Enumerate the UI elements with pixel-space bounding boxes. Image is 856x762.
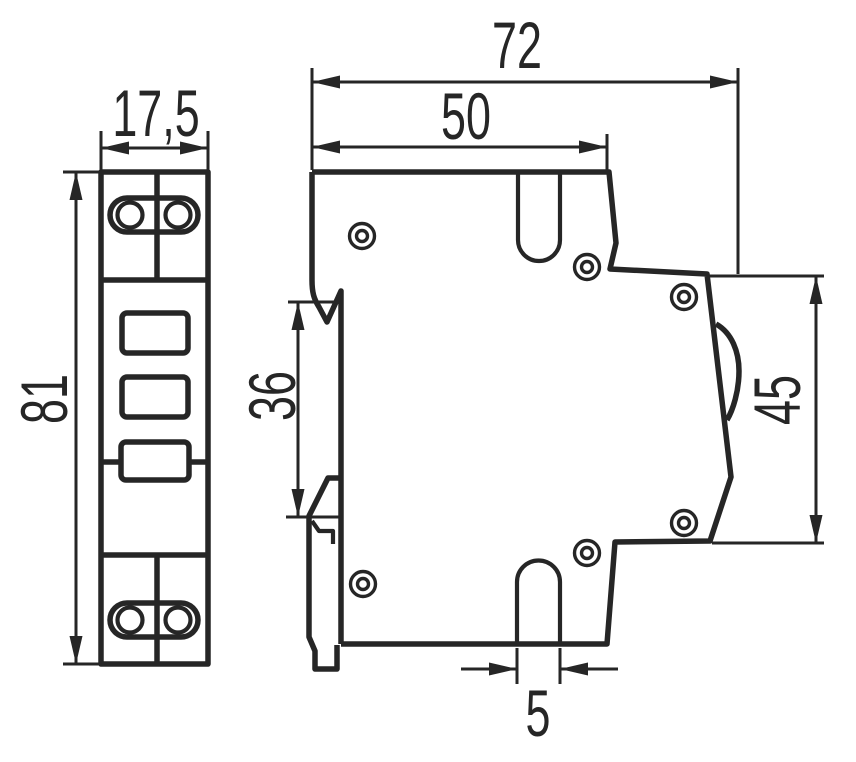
side-view bbox=[309, 172, 739, 669]
rivet-inner bbox=[582, 262, 593, 273]
front-window-1 bbox=[122, 313, 188, 353]
rivet-outer bbox=[672, 285, 697, 310]
dim-5-arrow-right bbox=[560, 663, 588, 676]
dim-5-arrow-left bbox=[489, 663, 517, 676]
dim-45-arrow-bottom bbox=[810, 515, 823, 543]
rivet-inner bbox=[358, 579, 369, 590]
dim-36-arrow-bottom bbox=[292, 489, 305, 517]
dim-72-arrow-right bbox=[710, 76, 738, 89]
rivet-inner bbox=[679, 518, 690, 529]
dim-45-arrow-top bbox=[810, 276, 823, 304]
terminal-screw-bottom-left bbox=[118, 608, 143, 633]
dim-label-50: 50 bbox=[441, 83, 491, 149]
dim-label-45: 45 bbox=[744, 375, 810, 425]
rivet-inner bbox=[357, 231, 368, 242]
rivet-bottom-left bbox=[351, 572, 376, 597]
dim-50-arrow-left bbox=[312, 141, 340, 154]
rivet-top-right bbox=[672, 285, 697, 310]
rivet-bottom-right bbox=[672, 511, 697, 536]
side-body-outline bbox=[312, 172, 731, 644]
rivet-outer bbox=[351, 572, 376, 597]
dim-36-arrow-top bbox=[292, 302, 305, 330]
rivet-inner bbox=[582, 548, 593, 559]
terminal-screw-top-right bbox=[166, 203, 191, 228]
rivet-outer bbox=[350, 224, 375, 249]
rivet-outer bbox=[672, 511, 697, 536]
rivet-top-left bbox=[350, 224, 375, 249]
mounting-slot-bottom bbox=[517, 561, 560, 647]
dim-label-17-5: 17,5 bbox=[112, 80, 199, 146]
dim-50-arrow-right bbox=[579, 141, 607, 154]
din-clip-detail bbox=[312, 521, 333, 544]
front-view bbox=[101, 172, 208, 664]
dim-72-arrow-left bbox=[312, 76, 340, 89]
din-clip bbox=[309, 478, 341, 669]
terminal-screw-top-left bbox=[118, 203, 143, 228]
rivet-outer bbox=[575, 541, 600, 566]
dim-label-72: 72 bbox=[492, 12, 542, 78]
dim-label-5: 5 bbox=[526, 680, 551, 746]
rivet-top-middle bbox=[575, 255, 600, 280]
dim-label-81: 81 bbox=[11, 374, 77, 424]
rivet-inner bbox=[679, 292, 690, 303]
technical-drawing-canvas: 72 50 17,5 81 36 45 5 bbox=[0, 0, 856, 762]
terminal-screw-bottom-right bbox=[166, 608, 191, 633]
rivet-bottom-middle bbox=[575, 541, 600, 566]
din-rail-hook-edge bbox=[312, 172, 341, 644]
dim-height-arrow-top bbox=[70, 172, 83, 200]
rivet-outer bbox=[575, 255, 600, 280]
front-window-3 bbox=[121, 442, 189, 480]
dim-height-arrow-bottom bbox=[70, 636, 83, 664]
mounting-slot-top bbox=[518, 172, 560, 261]
front-window-2 bbox=[122, 377, 188, 417]
dim-label-36: 36 bbox=[239, 371, 305, 421]
